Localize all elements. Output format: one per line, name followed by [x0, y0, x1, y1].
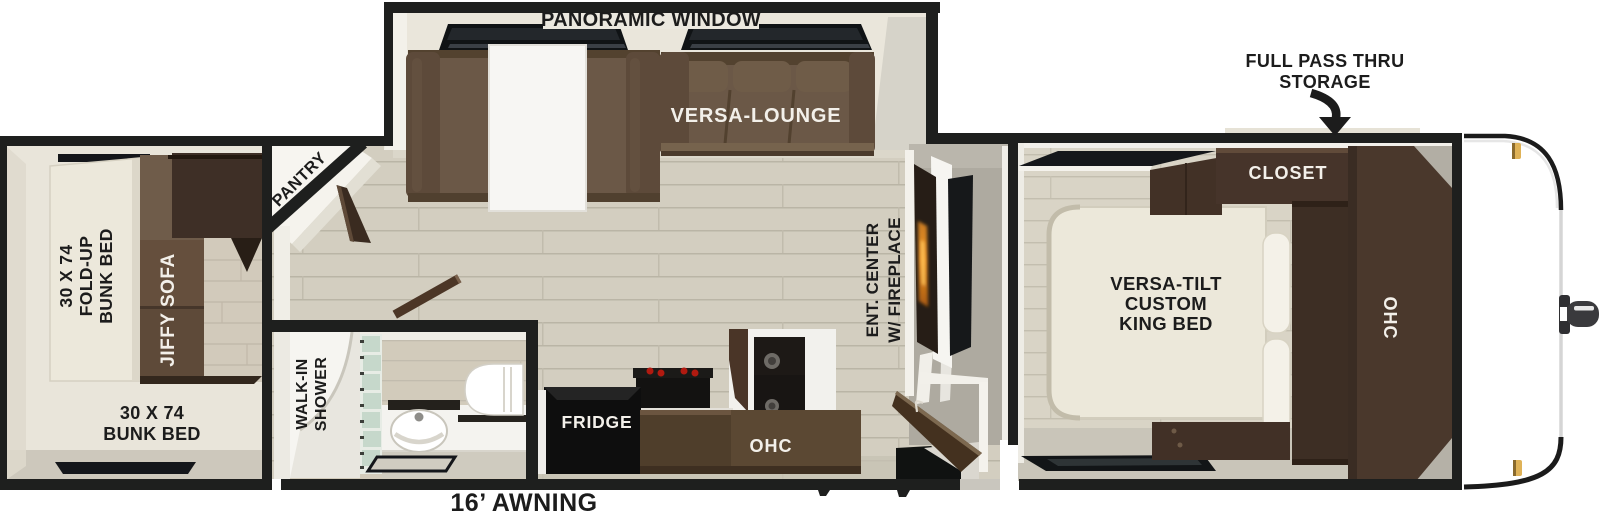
svg-text:FRIDGE: FRIDGE	[562, 412, 633, 432]
svg-text:OHC: OHC	[1380, 297, 1400, 340]
svg-text:FULL PASS THRU: FULL PASS THRU	[1246, 51, 1405, 71]
svg-text:VERSA-LOUNGE: VERSA-LOUNGE	[671, 105, 842, 127]
svg-text:VERSA-TILT: VERSA-TILT	[1110, 273, 1222, 294]
svg-text:PANORAMIC WINDOW: PANORAMIC WINDOW	[541, 9, 761, 31]
svg-text:16’ AWNING: 16’ AWNING	[450, 489, 597, 515]
svg-text:JIFFY SOFA: JIFFY SOFA	[158, 253, 179, 366]
svg-text:STORAGE: STORAGE	[1279, 72, 1370, 92]
svg-text:CLOSET: CLOSET	[1248, 163, 1327, 183]
svg-text:BUNK BED: BUNK BED	[103, 424, 200, 444]
svg-text:30 X 74: 30 X 74	[120, 403, 184, 423]
svg-text:OHC: OHC	[750, 436, 793, 456]
svg-text:KING BED: KING BED	[1119, 313, 1213, 334]
svg-text:CUSTOM: CUSTOM	[1125, 293, 1207, 314]
